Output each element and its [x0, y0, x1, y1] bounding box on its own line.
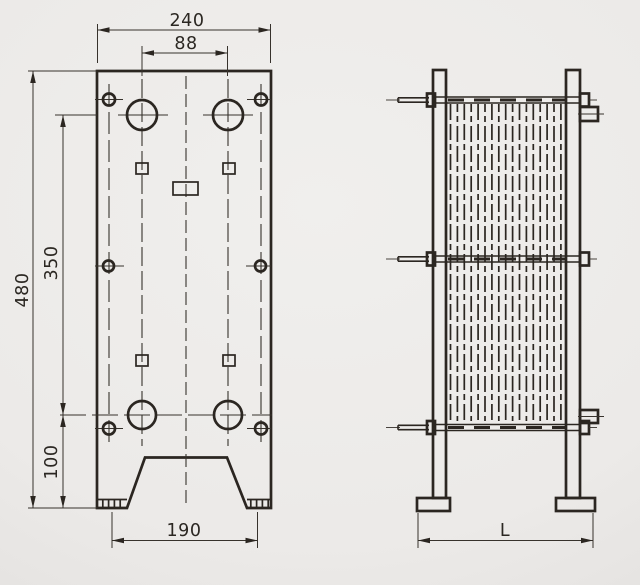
dim-port-vertical-span-label: 350 — [42, 246, 62, 281]
front-view: 240 88 480 350 100 190 — [13, 11, 272, 548]
frame-plate-outline — [97, 71, 271, 508]
drawing-canvas: 240 88 480 350 100 190 — [0, 0, 640, 585]
side-dimensions: L — [418, 513, 593, 548]
tie-bolt-bands — [434, 97, 580, 431]
tie-bolts-right — [580, 94, 597, 435]
tie-bolts-left — [386, 94, 435, 435]
dim-port-to-base-label: 100 — [42, 445, 62, 480]
dim-overall-width-label: 240 — [170, 11, 205, 31]
right-column — [566, 70, 580, 498]
pipe-stub-top — [578, 107, 604, 121]
dim-frame-length-label: L — [500, 521, 510, 541]
center-lines — [60, 76, 272, 506]
technical-drawing: 240 88 480 350 100 190 — [0, 0, 640, 585]
dim-overall-height-label: 480 — [13, 273, 33, 308]
right-column-foot — [556, 498, 595, 511]
dim-feet-span-label: 190 — [167, 521, 202, 541]
middle-bolt-holes — [103, 261, 266, 272]
corner-bolt-holes — [103, 94, 267, 435]
dim-port-span-label: 88 — [174, 34, 197, 54]
left-column-foot — [417, 498, 450, 511]
side-view: L — [386, 70, 604, 548]
